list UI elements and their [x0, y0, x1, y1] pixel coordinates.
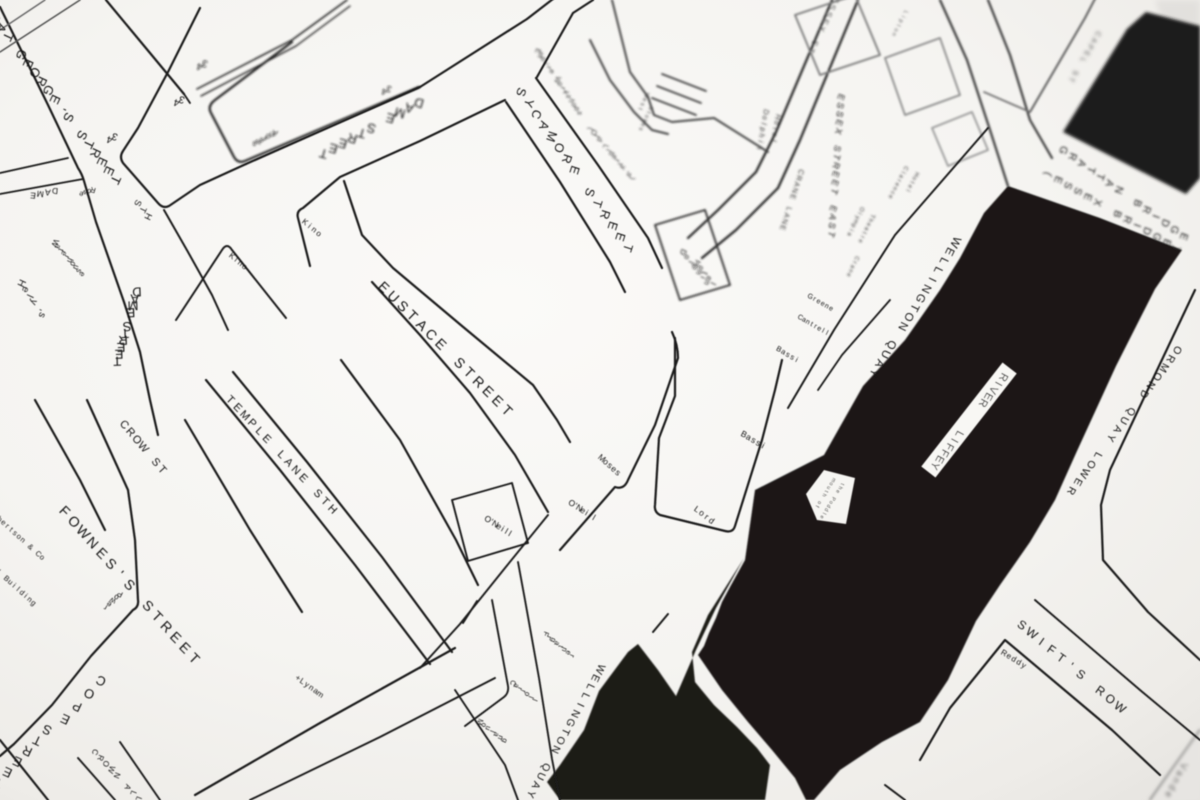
svg-text:D: D [51, 186, 58, 197]
svg-text:M: M [36, 189, 44, 200]
svg-text:E: E [126, 305, 136, 320]
svg-text:T: T [113, 354, 122, 369]
